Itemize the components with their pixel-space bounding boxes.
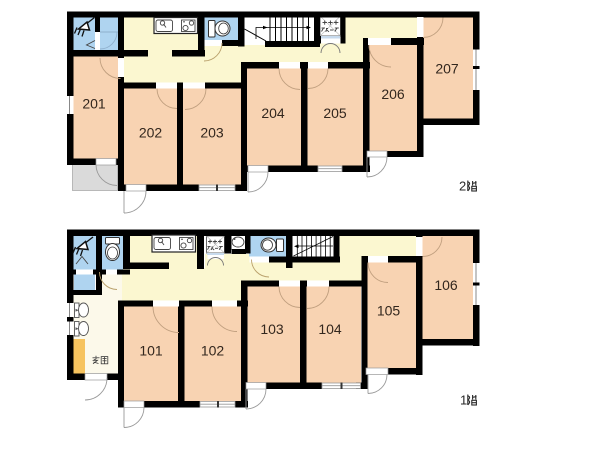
svg-text:202: 202 [139, 125, 163, 141]
svg-text:203: 203 [200, 125, 224, 141]
svg-text:207: 207 [435, 61, 459, 77]
svg-text:205: 205 [323, 105, 347, 121]
svg-text:102: 102 [201, 343, 225, 359]
svg-text:2: 2 [459, 179, 466, 194]
svg-text:106: 106 [434, 277, 458, 293]
svg-text:104: 104 [318, 321, 342, 337]
svg-text:204: 204 [261, 105, 285, 121]
svg-text:201: 201 [82, 96, 106, 112]
svg-text:103: 103 [260, 321, 284, 337]
svg-text:105: 105 [377, 303, 401, 319]
svg-text:206: 206 [381, 86, 405, 102]
svg-text:101: 101 [139, 343, 163, 359]
svg-text:1: 1 [460, 393, 467, 408]
